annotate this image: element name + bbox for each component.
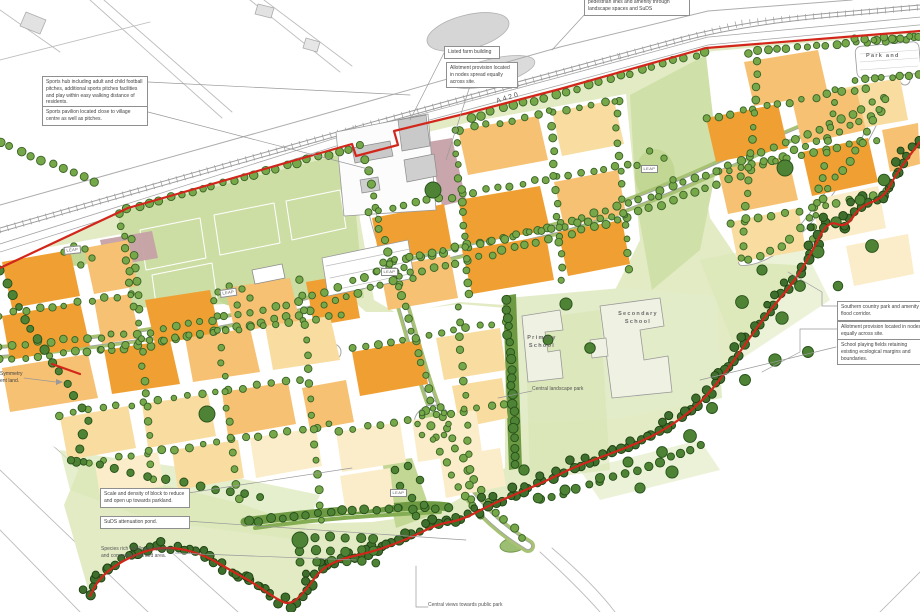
annotation-symmetry: Symmetry ent land.	[0, 371, 30, 385]
label-secondary-school: Secondary School	[612, 310, 664, 327]
annotation-wildflower: Species rich wildflower meadow and commu…	[101, 546, 181, 560]
label-leap-3: LEAP	[381, 268, 398, 276]
label-park-and: Park and	[866, 52, 920, 60]
label-primary-school: Primary School	[522, 334, 562, 351]
annotation-symmetry-line1: Symmetry	[0, 371, 30, 378]
annotation-pedestrian-links: pedestrian links and amenity through lan…	[584, 0, 690, 16]
annotation-central-views: Central views towards public park	[428, 602, 528, 609]
annotation-school-fields: School playing fields retaining existing…	[837, 339, 920, 365]
annotation-sports-hub: Sports hub including adult and child foo…	[42, 76, 148, 109]
label-central-landscape-park: Central landscape park	[532, 386, 602, 393]
annotation-southern-park: Southern country park and amenity in flo…	[837, 301, 920, 321]
masterplan-canvas: A420 pedestrian links and amenity throug…	[0, 0, 920, 612]
label-leap-4: LEAP	[641, 165, 658, 173]
annotation-symmetry-line2: ent land.	[0, 378, 30, 385]
annotation-allotment-top: Allotment provision located in nodes spr…	[446, 62, 518, 88]
annotation-sports-pavilion: Sports pavilion located close to village…	[42, 106, 148, 126]
annotation-allotment-right: Allotment provision located in nodes equ…	[837, 321, 920, 341]
label-leap-5: LEAP	[390, 489, 407, 497]
annotation-listed-farm: Listed farm building	[444, 46, 500, 59]
annotation-suds-pond: SuDS attenuation pond.	[100, 516, 190, 529]
annotation-scale-density: Scale and density of block to reduce and…	[100, 488, 190, 508]
